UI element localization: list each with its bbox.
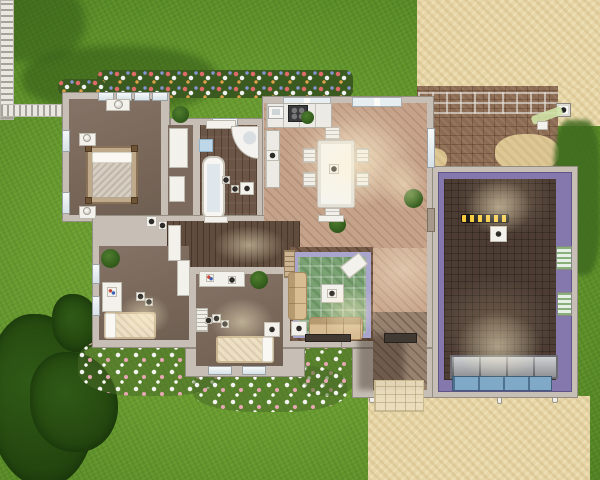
bath-item — [222, 176, 230, 184]
floor-toy — [145, 298, 153, 306]
bed-pillow — [262, 337, 273, 362]
window-bed3-south — [242, 366, 266, 375]
bed-pillow — [105, 313, 116, 338]
table-centerpiece — [329, 164, 339, 174]
counter-plant — [301, 111, 314, 124]
toilet[interactable] — [240, 182, 254, 195]
decor-chip — [228, 276, 236, 284]
table-lamp — [83, 207, 91, 215]
coffee-table-decor — [327, 289, 337, 298]
picket-fence-vertical — [0, 0, 14, 120]
floor-toy — [212, 314, 221, 323]
window-garage-east — [557, 292, 572, 316]
bed-post — [131, 197, 138, 204]
wall-art — [318, 215, 344, 222]
scene — [0, 0, 600, 480]
picket-fence-horizontal — [0, 104, 64, 117]
dining-table[interactable] — [317, 140, 355, 208]
window-master-west — [62, 130, 70, 152]
vanity-mirror — [114, 100, 123, 109]
dining-chair[interactable] — [356, 148, 369, 163]
garage-door-mat — [452, 376, 552, 391]
decor-chip — [146, 216, 157, 227]
floor-toy — [205, 317, 212, 324]
deck-console — [384, 333, 417, 343]
kitchen-sink[interactable] — [268, 106, 284, 119]
dining-chair[interactable] — [325, 127, 340, 140]
loveseat[interactable] — [288, 272, 307, 320]
table-lamp — [83, 134, 91, 142]
nightstand[interactable] — [264, 322, 280, 337]
walkway-corner — [537, 121, 548, 130]
bed-post — [85, 197, 92, 204]
driveway-grid — [418, 92, 558, 114]
bed-pillows — [92, 152, 132, 163]
window-bed3-south — [208, 366, 232, 375]
sand-yard-top — [417, 0, 600, 92]
window-master-north — [134, 92, 150, 101]
window-kitchen-north — [352, 97, 402, 107]
window-dining-east — [427, 128, 435, 168]
bed-post — [131, 145, 138, 152]
porch-steps — [374, 380, 424, 412]
counter-item — [266, 150, 279, 161]
tv-console[interactable] — [305, 334, 351, 342]
window-master-west — [62, 192, 70, 214]
floor-toy — [221, 320, 229, 328]
window-bed2-west — [92, 296, 100, 316]
bedroom2-plant — [101, 249, 120, 268]
bath-item — [231, 185, 239, 193]
wall-art — [204, 216, 228, 223]
wardrobe[interactable] — [169, 128, 188, 168]
window-master-north — [152, 92, 168, 101]
bedroom3-plant — [250, 271, 268, 289]
window-garage-east — [556, 246, 572, 270]
laundry-hamper — [199, 139, 213, 152]
floor-toy — [136, 292, 145, 301]
dining-chair[interactable] — [356, 172, 369, 187]
bathtub[interactable] — [202, 156, 225, 220]
decor-chip — [158, 221, 167, 230]
dining-chair[interactable] — [303, 172, 316, 187]
desk-clutter — [107, 287, 117, 297]
toy-race-track[interactable] — [461, 214, 509, 223]
entry-plant — [404, 189, 423, 208]
bed-post — [85, 145, 92, 152]
hall-cabinet[interactable] — [168, 225, 181, 261]
desk-clutter — [206, 274, 214, 282]
potted-plant — [172, 106, 189, 123]
storage-box — [490, 226, 507, 242]
wardrobe[interactable] — [177, 260, 190, 296]
floor-entry — [373, 248, 427, 312]
closet-dresser[interactable] — [169, 176, 185, 202]
garage-floor — [444, 179, 556, 380]
dining-chair[interactable] — [303, 148, 316, 163]
front-door[interactable] — [427, 208, 435, 232]
window-bed2-west — [92, 264, 100, 284]
